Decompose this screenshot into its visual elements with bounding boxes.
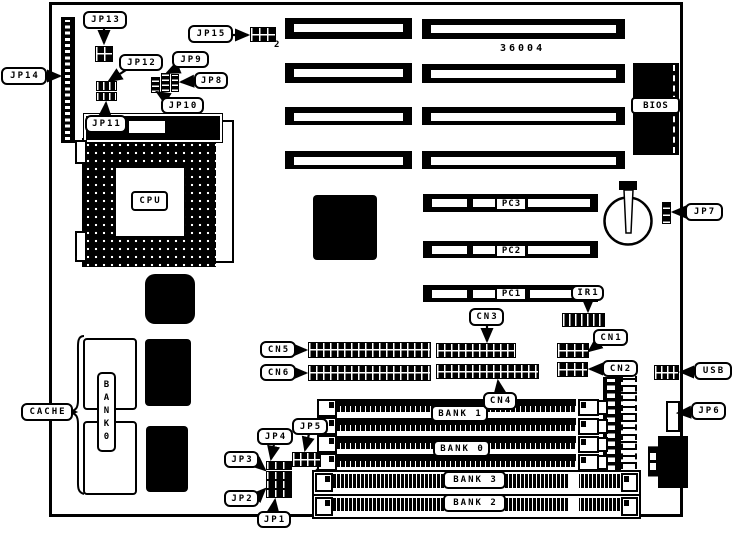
bank3-label: BANK 3 (443, 471, 506, 489)
cn2-label: CN2 (602, 360, 638, 377)
jp2-label: JP2 (224, 490, 259, 507)
jp13-label: JP13 (83, 11, 127, 29)
bank0-label: BANK 0 (433, 440, 490, 457)
usb-label: USB (694, 362, 732, 380)
jp5-label: JP5 (292, 418, 328, 435)
cache-label: CACHE (21, 403, 73, 421)
jp4-label: JP4 (257, 428, 293, 445)
jp5-pointer (305, 434, 309, 450)
jp9-label: JP9 (172, 51, 209, 68)
jp7-label: JP7 (685, 203, 723, 221)
jp1-label: JP1 (257, 511, 291, 528)
cn1-label: CN1 (593, 329, 628, 346)
battery-clip-top (619, 181, 637, 190)
bank2-label: BANK 2 (443, 494, 506, 512)
battery (605, 181, 652, 245)
jp12-label: JP12 (119, 54, 163, 71)
cn3-label: CN3 (469, 308, 504, 326)
jp15-pin2-marker: 2 (274, 40, 279, 50)
bios-label: BIOS (631, 97, 680, 114)
jp11-label: JP11 (85, 115, 127, 133)
bank1-label: BANK 1 (431, 405, 488, 422)
battery-clip-arm (624, 190, 633, 233)
ir1-label: IR1 (571, 285, 604, 301)
pointer-lines (0, 0, 734, 533)
cn5-label: CN5 (260, 341, 296, 358)
motherboard-diagram: 36004 BIOS PC3 PC2 PC1 IR1 JP7 JP14 JP13… (0, 0, 734, 533)
jp4-pointer (271, 444, 274, 459)
cache-bank0-label: BANK0 (97, 372, 116, 452)
jp6-label: JP6 (691, 402, 726, 420)
jp15-label: JP15 (188, 25, 233, 43)
jp12-pointer (109, 70, 126, 81)
cn6-label: CN6 (260, 364, 296, 381)
cn4-label: CN4 (483, 392, 517, 410)
jp3-label: JP3 (224, 451, 259, 468)
jp14-label: JP14 (1, 67, 47, 85)
jp5-pin2-marker: 2 (314, 465, 319, 475)
jp8-label: JP8 (194, 72, 228, 89)
jp10-label: JP10 (161, 97, 204, 114)
